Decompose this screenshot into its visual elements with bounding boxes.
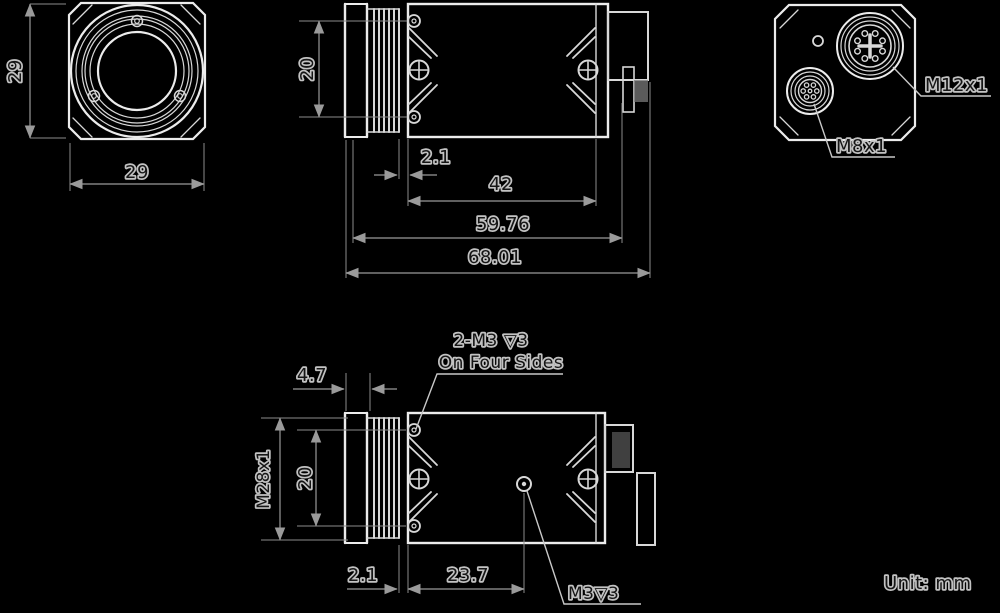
case-screw xyxy=(410,61,429,80)
lens-barrel xyxy=(345,413,399,543)
status-led xyxy=(813,36,823,46)
dim-hole-spacing-20: 20 xyxy=(297,57,318,81)
rear-connector-silhouette xyxy=(608,12,648,112)
flange-screw-hole xyxy=(132,16,143,27)
m12-connector xyxy=(837,13,903,79)
camera-dimension-drawing: 29 29 xyxy=(0,0,1000,613)
case-screw xyxy=(579,470,598,489)
dim-height-29: 29 xyxy=(5,59,26,83)
label-m12x1: M12x1 xyxy=(925,75,988,96)
mounting-hole xyxy=(408,424,420,436)
lens-mount-rings xyxy=(71,5,203,137)
front-view: 29 29 xyxy=(5,3,205,191)
dim-body-length-42: 42 xyxy=(489,174,513,195)
callout-2-m3-line1: 2-M3 ▽3 xyxy=(453,331,528,351)
dim-total-length-68-01: 68.01 xyxy=(468,247,522,268)
unit-note: Unit: mm xyxy=(884,573,972,594)
dim-gap-2-1: 2.1 xyxy=(348,565,378,586)
dim-width-29: 29 xyxy=(125,162,149,183)
dim-ring-width-4-7: 4.7 xyxy=(297,365,327,386)
callout-2-m3-line2: On Four Sides xyxy=(439,353,563,373)
side-view-bottom: 2-M3 ▽3 On Four Sides 4.7 M28x1 20 2.1 2… xyxy=(254,331,655,604)
dim-gap-2-1: 2.1 xyxy=(421,147,451,168)
mounting-hole xyxy=(408,520,420,532)
label-m8x1: M8x1 xyxy=(836,136,887,157)
rear-connector-silhouette xyxy=(605,425,655,545)
mounting-hole xyxy=(408,15,420,27)
dim-hole-offset-23-7: 23.7 xyxy=(447,565,489,586)
side-view-top: 20 2.1 42 59.76 68.01 xyxy=(297,4,650,278)
dim-mount-length-59-76: 59.76 xyxy=(476,214,530,235)
dim-hole-spacing-20: 20 xyxy=(295,466,316,490)
m3-tripod-hole xyxy=(517,477,531,491)
rear-view: M12x1 M8x1 xyxy=(775,5,991,157)
mounting-hole xyxy=(408,111,420,123)
label-lens-thread-m28x1: M28x1 xyxy=(254,449,274,509)
camera-body-side xyxy=(408,413,605,543)
m8-connector xyxy=(787,68,833,114)
case-screw xyxy=(410,470,429,489)
label-m3-depth-3: M3▽3 xyxy=(568,584,619,604)
case-screw xyxy=(579,61,598,80)
